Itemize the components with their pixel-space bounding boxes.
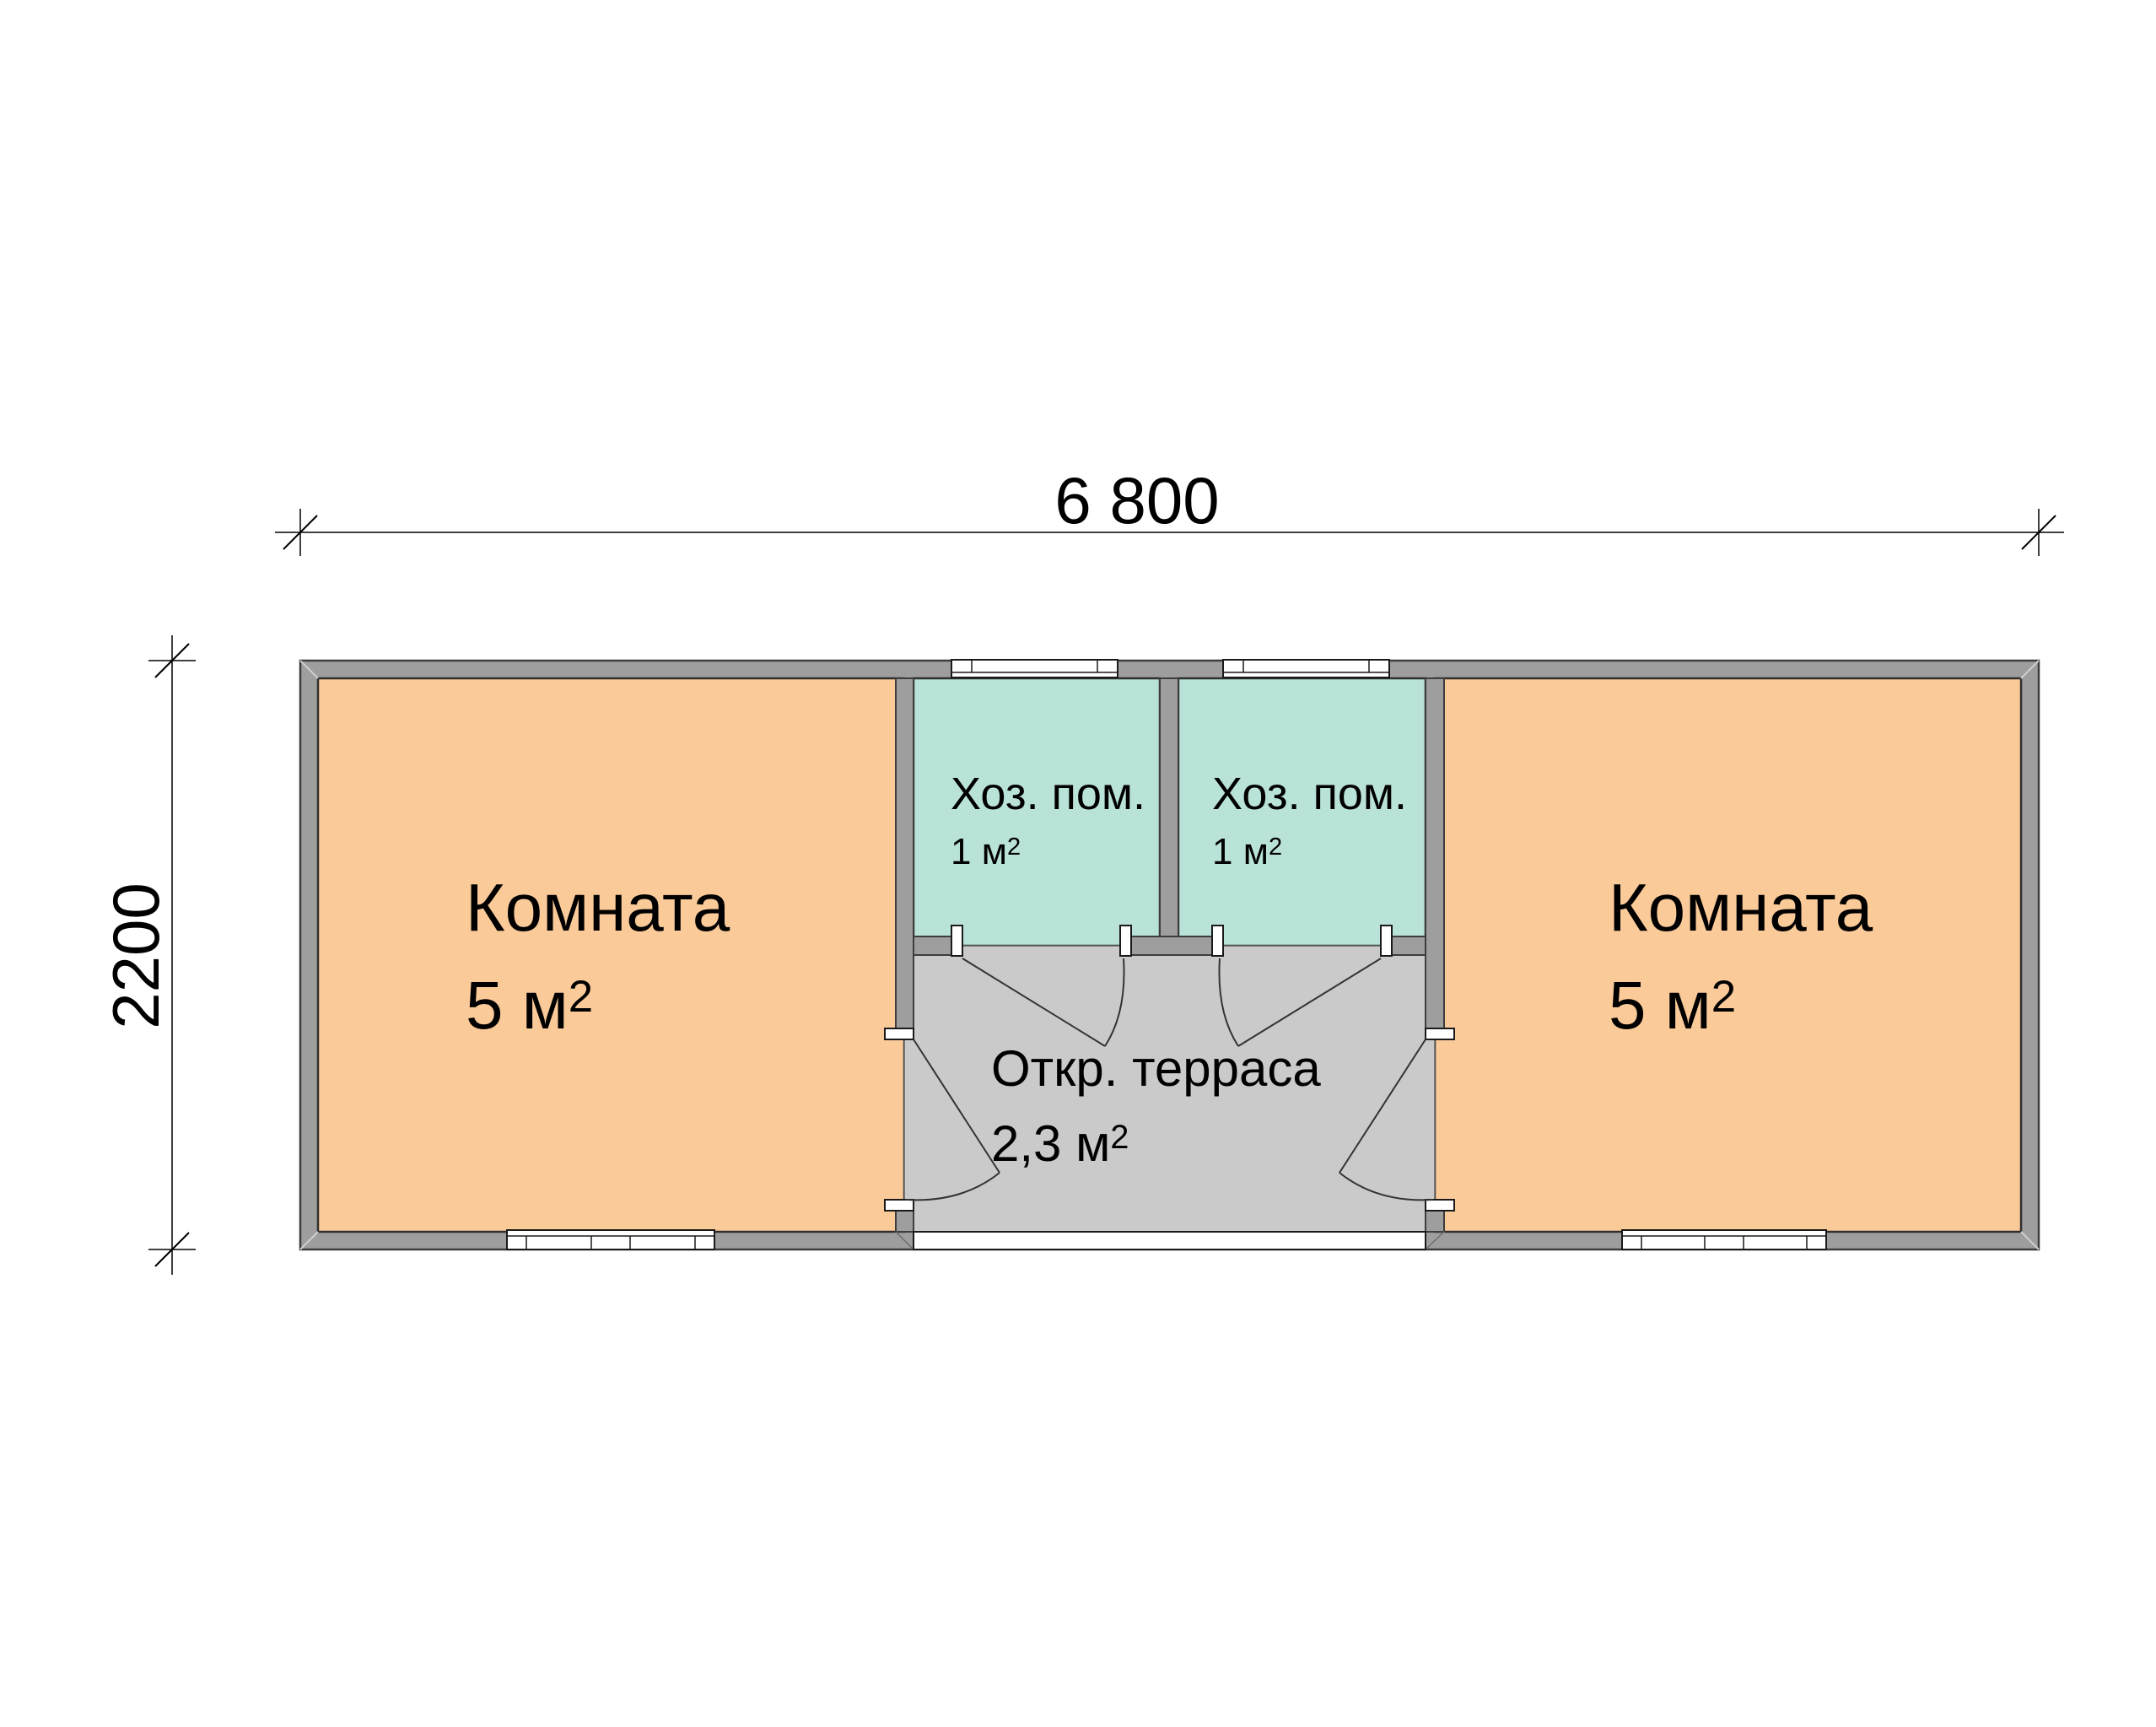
room-right-name: Комната xyxy=(1609,874,1873,942)
dimension-width-value: 6 800 xyxy=(1054,463,1219,537)
room-right-area-sup: 2 xyxy=(1711,972,1736,1022)
utility1-door-jamb-right xyxy=(1120,926,1131,956)
room-right-door-jamb-top xyxy=(1426,1028,1454,1039)
window-bottom-left xyxy=(507,1230,714,1249)
wall-utility1-stub-left xyxy=(914,936,951,955)
wall-left-room-upper xyxy=(896,678,914,1028)
utility1-door-jamb-left xyxy=(951,926,962,956)
utility1-name: Хоз. пом. xyxy=(951,771,1145,817)
room-left-door-jamb-top xyxy=(885,1028,914,1039)
wall-utility-stub-center xyxy=(1131,936,1212,955)
dimension-height-label: 2200 xyxy=(103,882,169,1029)
wall-left-room-lower xyxy=(896,1211,914,1232)
room-right-area: 5 м2 xyxy=(1609,972,1736,1039)
room-left-area-sup: 2 xyxy=(569,972,593,1022)
floor-plan-page: 6 800 2200 Комната 5 м2 Комната 5 м2 Хоз… xyxy=(0,0,2156,1727)
terrace-threshold xyxy=(914,1232,1426,1249)
room-left-door-jamb-bottom xyxy=(885,1200,914,1211)
utility1-area: 1 м2 xyxy=(951,834,1021,871)
wall-utility2-stub-right xyxy=(1392,936,1426,955)
utility2-door-jamb-right xyxy=(1381,926,1392,956)
room-right-door-jamb-bottom xyxy=(1426,1200,1454,1211)
wall-right-room-lower xyxy=(1426,1211,1444,1232)
terrace-area-sup: 2 xyxy=(1110,1119,1129,1156)
room-left-area: 5 м2 xyxy=(466,972,593,1039)
dimension-width-label: 6 800 xyxy=(968,467,1306,533)
window-top-1 xyxy=(951,660,1118,677)
utility2-name: Хоз. пом. xyxy=(1212,771,1407,817)
utility1-area-sup: 2 xyxy=(1007,834,1021,861)
terrace-name: Откр. терраса xyxy=(991,1044,1321,1094)
utility2-door-jamb-left xyxy=(1212,926,1223,956)
terrace-area: 2,3 м2 xyxy=(991,1119,1129,1169)
room-left-name: Комната xyxy=(466,874,730,942)
floor-plan-drawing xyxy=(0,0,2156,1727)
utility2-area: 1 м2 xyxy=(1212,834,1282,871)
room-left-floor xyxy=(318,678,904,1232)
dimension-height-value: 2200 xyxy=(99,882,173,1029)
wall-right-room-upper xyxy=(1426,678,1444,1028)
room-right-floor xyxy=(1435,678,2021,1232)
window-top-2 xyxy=(1223,660,1389,677)
utility2-area-sup: 2 xyxy=(1269,834,1282,861)
wall-between-utilities xyxy=(1160,678,1178,955)
window-bottom-right xyxy=(1622,1230,1826,1249)
